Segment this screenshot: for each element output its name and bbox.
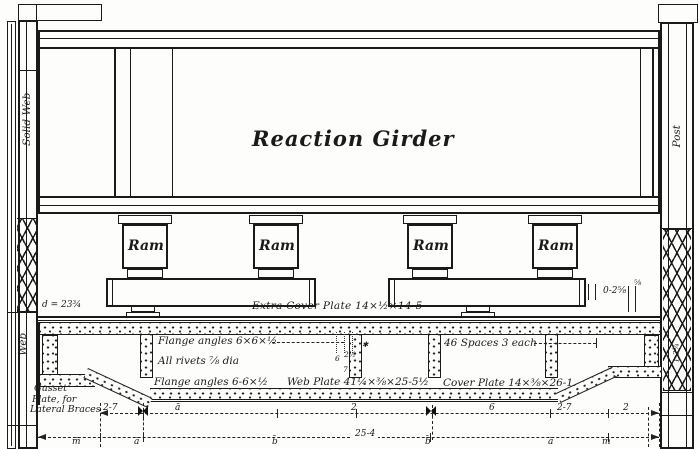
rivets-note-label: All rivets ⅞ dia: [158, 356, 239, 367]
web-plate-label: Web Plate 41¼×⅜×25-5½: [287, 377, 429, 388]
d-dimension-label: d = 23¾: [42, 301, 81, 310]
spacing-leader: [534, 343, 596, 344]
left-column-lower-label: Web: [18, 308, 29, 380]
reaction-girder-left-stiffener-2: [130, 48, 131, 196]
gusset-note-line3: Lateral Braces: [30, 405, 101, 415]
reaction-girder-top-flange-line-2: [40, 47, 658, 49]
left-column-joint-3: [7, 425, 38, 426]
cover-plate-label: Cover Plate 14×⅜×26-1: [443, 378, 573, 389]
beam-left-end-line-1: [112, 280, 113, 305]
dim-upper-label-4: 6: [489, 404, 495, 413]
reaction-girder-left-stiffener-1: [114, 48, 116, 196]
end-dim-tick-1: [588, 284, 589, 300]
ram-2-base: [258, 269, 294, 278]
spacing-leader-tick: [596, 338, 597, 348]
reference-mark: ✱: [362, 341, 368, 349]
test-girder-left-end-post: [42, 335, 58, 375]
test-girder-right-end-post: [644, 335, 659, 368]
gauge-dim-2: 2½: [344, 351, 356, 359]
dim-upper-label-3: 2: [351, 404, 357, 413]
ram-1-cap: [118, 215, 172, 224]
dim-lower-label-7: m̄: [602, 438, 611, 447]
dim-upper-tick-6: [608, 409, 609, 418]
ram-4-cap: [528, 215, 582, 224]
right-column-dim-label: 1-2¾: [672, 323, 680, 383]
gauge-dim-1: 6: [335, 355, 340, 363]
dim-lower-label-2: ā: [134, 438, 139, 447]
bed-line-2: [38, 320, 661, 321]
ram-3-base: [412, 269, 448, 278]
dim-upper-label-2: ā: [175, 404, 180, 413]
reaction-girder-right-stiffener-2: [652, 48, 654, 196]
dim-line-upper: [100, 413, 659, 414]
right-column-cap: [658, 4, 698, 23]
reaction-girder-bottom-flange-line-2: [40, 205, 658, 206]
end-dim-tick-3: [628, 286, 629, 312]
ram-1-label: Ram: [128, 239, 164, 253]
test-girder-right-edge: [660, 322, 662, 400]
end-dimension-label: 0-2⅝: [603, 287, 626, 296]
left-column-lattice: [17, 218, 38, 312]
left-column-cap: [18, 4, 102, 21]
ram-2-label: Ram: [259, 239, 295, 253]
test-girder-bottom-flange: [150, 388, 558, 400]
end-dim-tick-4: [635, 286, 636, 312]
right-column-joint-3: [660, 415, 694, 416]
end-dim-tick-2: [595, 284, 596, 300]
gusset-note-line1: Gusset: [34, 384, 67, 394]
dim-connector-4: [648, 407, 649, 447]
right-column-joint-2: [660, 392, 694, 393]
left-column-upper-label: Solid Web: [22, 79, 33, 159]
left-column-outer-strip-line: [11, 24, 12, 446]
dim-upper-label-1: 2-7: [103, 404, 118, 413]
extra-cover-plate-label: Extra Cover Plate 14×½×14-5: [252, 301, 423, 312]
flange-angles-top-label: Flange angles 6×6×½: [158, 336, 277, 347]
gauge-dim-3: 7: [343, 366, 348, 374]
dim-connector-1: [100, 403, 101, 447]
reaction-girder-right-stiffener-1: [640, 48, 641, 196]
dim-upper-label-5: 2-7: [557, 404, 572, 413]
dim-lower-arrow-right: [651, 434, 659, 440]
ram-3-cap: [403, 215, 457, 224]
reaction-girder-top-flange-line-1: [40, 38, 658, 39]
beam-right-end-line-2: [579, 280, 580, 305]
anchor-marker-left: [138, 406, 148, 416]
engineering-drawing: Solid Web Web Post 1-2¾ Reaction Girder …: [0, 0, 700, 449]
dim-lower-label-5: b̄: [425, 438, 431, 447]
reaction-girder-bottom-flange-line-1: [40, 196, 658, 198]
reaction-girder: [38, 30, 660, 214]
dim-connector-5: [659, 403, 660, 447]
dim-lower-label-3: b̄: [272, 438, 278, 447]
ram-3-label: Ram: [413, 239, 449, 253]
dim-lower-label-4: 25-4: [352, 430, 378, 439]
spacing-note-label: 46 Spaces 3 each: [444, 338, 537, 349]
ram-4-base: [537, 269, 573, 278]
reaction-girder-title: Reaction Girder: [252, 128, 455, 149]
test-girder-stiffener-3: [428, 334, 441, 378]
test-girder-stiffener-1: [140, 334, 153, 378]
bed-line-1: [38, 316, 661, 318]
gauge-leader-1: [336, 332, 337, 353]
ram-2-cap: [249, 215, 303, 224]
dim-lower-label-1: m̄: [72, 438, 81, 447]
dim-upper-tick-2: [277, 409, 278, 418]
flange-angles-bottom-label: Flange angles 6-6×½: [154, 377, 268, 388]
dim-upper-tick-5: [550, 409, 551, 418]
dim-lower-label-6: ā: [548, 438, 553, 447]
dim-lower-arrow-left: [38, 434, 46, 440]
right-column-label: Post: [672, 96, 683, 176]
ram-4-label: Ram: [538, 239, 574, 253]
dim-upper-arrow-right: [651, 410, 659, 416]
flange-angles-leader: [272, 342, 344, 343]
left-column-joint-1: [18, 70, 38, 71]
dim-line-lower: [38, 437, 659, 438]
reaction-girder-left-stiffener-3: [172, 48, 173, 196]
left-column-cap-joint: [36, 4, 37, 21]
anchor-marker-mid: [426, 406, 436, 416]
ram-1-base: [127, 269, 163, 278]
test-girder-stiffener-4: [545, 334, 558, 378]
dim-upper-label-6: 2: [623, 404, 629, 413]
